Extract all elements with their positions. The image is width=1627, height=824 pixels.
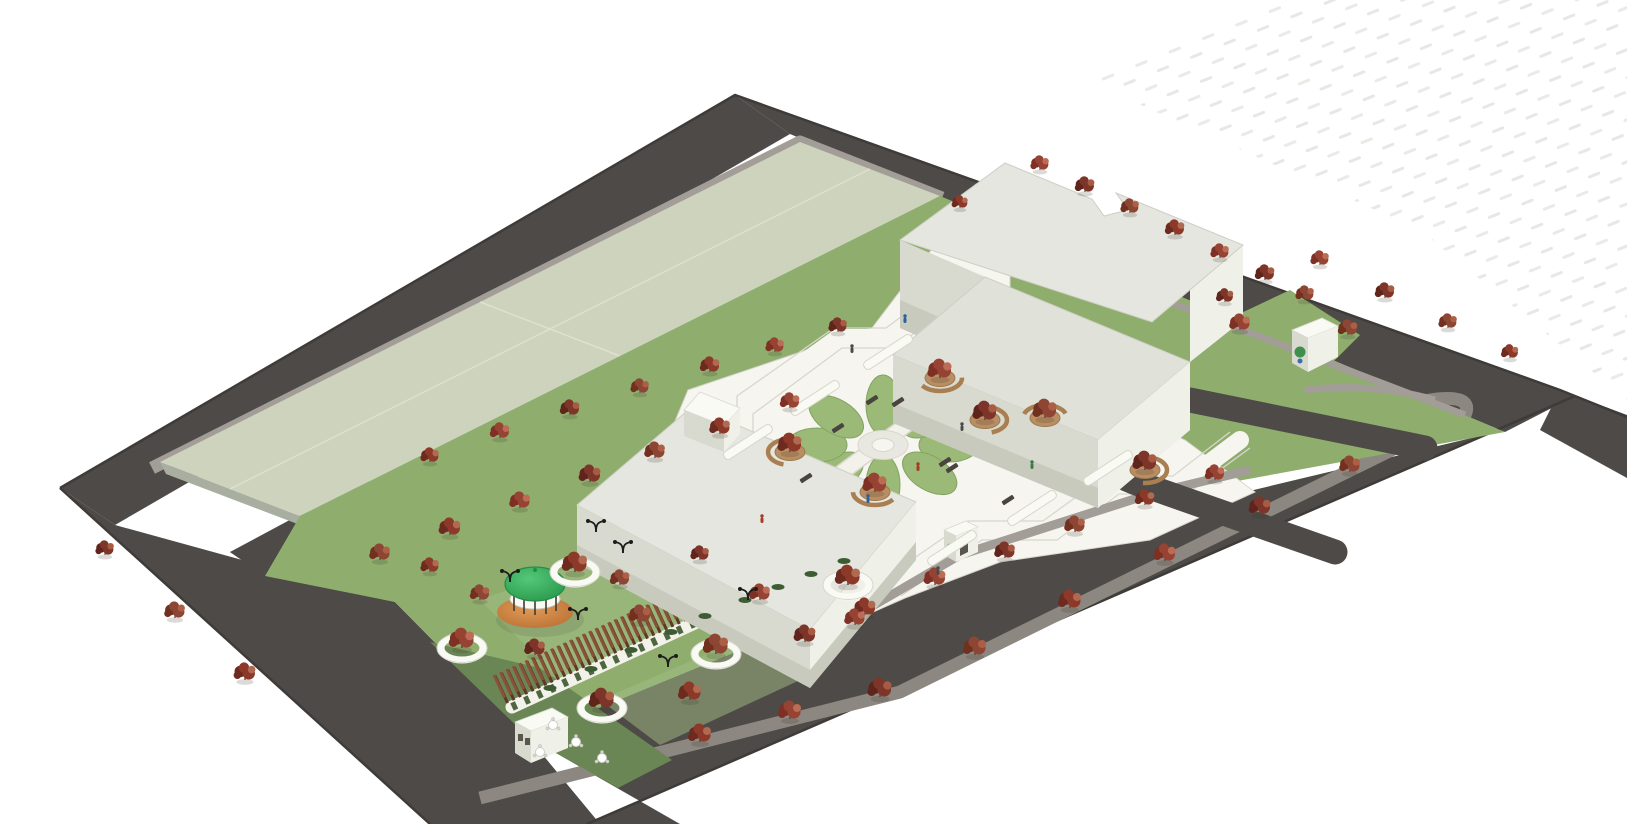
tree-canopy: [1307, 288, 1313, 294]
tree-shadow: [98, 555, 112, 560]
tree-canopy: [835, 575, 844, 584]
tree-canopy: [765, 345, 771, 351]
person-head: [760, 514, 763, 517]
lamp-head: [500, 569, 504, 573]
table-top: [598, 754, 607, 763]
tree-shadow: [372, 559, 388, 564]
tree-canopy: [688, 733, 696, 741]
tree-canopy: [793, 436, 801, 444]
tree-canopy: [644, 450, 651, 457]
tree-canopy: [999, 541, 1009, 551]
tree-canopy: [614, 569, 623, 578]
tree-canopy: [794, 633, 802, 641]
tree-shadow: [512, 507, 528, 512]
lamp-head: [613, 540, 617, 544]
tree-canopy: [955, 195, 963, 203]
tree-canopy: [873, 678, 885, 690]
tree-canopy: [164, 610, 171, 617]
tree-canopy: [927, 369, 935, 377]
tree-canopy: [239, 662, 249, 672]
table-chair: [557, 727, 560, 730]
hedge-shrub: [665, 629, 678, 635]
person-figure: [903, 314, 906, 323]
tree-canopy: [702, 548, 708, 554]
tree-canopy: [878, 476, 886, 484]
tree-canopy: [453, 521, 461, 529]
tree-canopy: [777, 340, 783, 346]
tree-canopy: [107, 543, 113, 549]
tree-canopy: [694, 724, 705, 735]
tree-canopy: [538, 642, 545, 649]
tree-canopy: [1315, 250, 1324, 259]
tree-shadow: [423, 572, 437, 577]
tree-canopy: [564, 399, 573, 408]
tree-canopy: [432, 560, 438, 566]
tree-canopy: [444, 517, 454, 527]
tree-canopy: [1259, 264, 1268, 273]
table-chair: [569, 744, 572, 747]
tree-canopy: [449, 638, 458, 647]
tree-canopy: [465, 632, 474, 641]
tree-canopy: [1379, 282, 1388, 291]
table-chair: [595, 760, 598, 763]
tree-canopy: [700, 364, 707, 371]
tree-canopy: [1139, 489, 1148, 498]
tree-canopy: [432, 450, 438, 456]
tree-canopy: [1079, 176, 1088, 185]
tree-canopy: [1216, 295, 1222, 301]
tree-canopy: [474, 584, 483, 593]
tree-shadow: [612, 584, 627, 589]
tree-canopy: [1268, 267, 1275, 274]
lamp-head: [568, 607, 572, 611]
person-head: [866, 494, 869, 497]
person-head: [850, 344, 853, 347]
lamp-head: [584, 607, 588, 611]
tree-canopy: [978, 640, 986, 648]
hedge-shrub: [838, 558, 851, 564]
tree-canopy: [883, 681, 891, 689]
tree-canopy: [1342, 319, 1351, 328]
table-top: [572, 738, 581, 747]
table-chair: [606, 760, 609, 763]
tree-canopy: [1295, 293, 1301, 299]
lamp-head: [586, 519, 590, 523]
tree-canopy: [560, 407, 567, 414]
tree-canopy: [658, 445, 665, 452]
tree-canopy: [1234, 313, 1244, 323]
person-figure: [866, 494, 869, 503]
tree-canopy: [439, 526, 447, 534]
tree-canopy: [844, 617, 851, 624]
tree-canopy: [1042, 158, 1048, 164]
hedge-shrub: [805, 571, 818, 577]
tree-shadow: [693, 560, 707, 565]
tree-shadow: [796, 641, 813, 647]
tree-canopy: [709, 426, 716, 433]
tree-canopy: [1168, 547, 1176, 555]
tree-canopy: [483, 587, 490, 594]
tree-canopy: [784, 701, 795, 712]
tree-canopy: [584, 464, 594, 474]
tree-canopy: [568, 552, 580, 564]
tree-canopy: [529, 638, 539, 648]
tree-canopy: [643, 608, 651, 616]
tree-shadow: [926, 584, 943, 590]
tree-shadow: [1313, 265, 1327, 270]
tree-canopy: [952, 202, 958, 208]
lamp-head: [738, 587, 742, 591]
tree-canopy: [713, 359, 720, 366]
tree-canopy: [962, 198, 968, 204]
person-head: [960, 422, 963, 425]
tree-canopy: [777, 443, 785, 451]
tree-canopy: [1443, 313, 1452, 322]
tree-canopy: [1148, 454, 1156, 462]
tree-canopy: [509, 500, 516, 507]
tree-canopy: [868, 473, 880, 485]
tree-canopy: [972, 411, 980, 419]
table-chair: [538, 744, 541, 747]
tree-canopy: [862, 483, 870, 491]
tree-shadow: [423, 462, 437, 467]
tree-shadow: [1232, 329, 1248, 334]
tree-canopy: [1209, 464, 1218, 473]
tree-canopy: [1249, 505, 1257, 513]
tree-shadow: [831, 332, 845, 337]
tree-shadow: [1340, 334, 1355, 339]
tree-canopy: [523, 495, 530, 502]
person-body: [917, 466, 920, 472]
tree-canopy: [749, 592, 756, 599]
lamp-head: [658, 654, 662, 658]
tree-canopy: [425, 557, 434, 566]
tree-canopy: [1227, 291, 1233, 297]
tree-canopy: [1075, 184, 1082, 191]
tree-canopy: [1132, 201, 1138, 207]
person-body: [867, 498, 870, 504]
tree-shadow: [1441, 328, 1455, 333]
tree-shadow: [752, 599, 768, 604]
person-head: [903, 314, 906, 317]
tree-canopy: [1215, 243, 1224, 252]
tree-canopy: [849, 608, 859, 618]
tree-canopy: [778, 710, 786, 718]
tree-canopy: [1300, 285, 1309, 294]
tree-canopy: [562, 562, 571, 571]
tree-canopy: [709, 634, 721, 646]
hedge-shrub: [585, 666, 598, 672]
person-figure: [916, 462, 919, 471]
tree-shadow: [1251, 513, 1268, 519]
tree-canopy: [1254, 496, 1264, 506]
tree-shadow: [1077, 191, 1092, 196]
hedge-shrub: [544, 685, 557, 691]
table-chair: [600, 750, 603, 753]
tree-canopy: [470, 592, 477, 599]
tree-canopy: [1035, 155, 1044, 164]
tree-canopy: [1220, 288, 1228, 296]
person-body: [851, 348, 854, 354]
tree-canopy: [1008, 545, 1015, 552]
tree-canopy: [783, 433, 795, 445]
person-head: [916, 462, 919, 465]
person-body: [961, 426, 964, 432]
table-chair: [546, 727, 549, 730]
lamp-head: [674, 654, 678, 658]
tree-shadow: [997, 557, 1013, 562]
tree-canopy: [1120, 206, 1126, 212]
hedge-shrub: [772, 584, 785, 590]
person-figure: [936, 566, 939, 575]
tree-canopy: [828, 325, 834, 331]
tree-canopy: [1125, 198, 1134, 207]
tree-shadow: [1298, 300, 1312, 305]
table-top: [536, 748, 545, 757]
tree-canopy: [374, 543, 384, 553]
tree-canopy: [1058, 599, 1066, 607]
tree-shadow: [472, 599, 487, 604]
tree-shadow: [527, 654, 543, 659]
tree-canopy: [1064, 524, 1071, 531]
tree-canopy: [924, 576, 932, 584]
tree-canopy: [933, 359, 945, 371]
tree-canopy: [593, 468, 601, 476]
tree-canopy: [1505, 344, 1513, 352]
tree-canopy: [1132, 461, 1140, 469]
tree-canopy: [770, 337, 779, 346]
tree-shadow: [782, 407, 797, 412]
tree-canopy: [514, 491, 524, 501]
tree-canopy: [589, 698, 598, 707]
tree-canopy: [95, 548, 101, 554]
tree-shadow: [1137, 504, 1152, 509]
tree-canopy: [858, 612, 865, 619]
tree-canopy: [455, 628, 467, 640]
tree-canopy: [1064, 590, 1075, 601]
person-figure: [960, 422, 963, 431]
tree-canopy: [1353, 459, 1360, 466]
tree-canopy: [623, 572, 630, 579]
tree-canopy: [1218, 467, 1225, 474]
tree-canopy: [1205, 472, 1212, 479]
tree-canopy: [1032, 409, 1040, 417]
table-top: [549, 721, 558, 730]
shed-window-2: [525, 738, 530, 745]
tree-canopy: [610, 577, 617, 584]
tree-shadow: [633, 393, 647, 398]
tree-shadow: [647, 457, 663, 462]
tree-shadow: [631, 621, 648, 627]
tree-canopy: [1138, 451, 1150, 463]
tree-shadow: [702, 371, 717, 376]
tree-canopy: [1229, 322, 1236, 329]
tree-shadow: [954, 208, 967, 212]
tree-canopy: [420, 455, 426, 461]
tree-canopy: [1255, 272, 1262, 279]
tree-canopy: [169, 601, 179, 611]
lamp-head: [602, 519, 606, 523]
lamp-head: [516, 569, 520, 573]
tree-canopy: [1073, 593, 1081, 601]
tree-canopy: [1078, 519, 1085, 526]
tree-canopy: [1322, 253, 1328, 259]
person-figure: [1030, 460, 1033, 469]
tree-canopy: [1339, 464, 1346, 471]
tree-canopy: [723, 421, 730, 428]
tree-canopy: [1038, 399, 1050, 411]
tree-canopy: [1154, 552, 1162, 560]
tree-canopy: [100, 540, 109, 549]
tree-canopy: [490, 430, 497, 437]
hedge-shrub: [625, 647, 638, 653]
tree-canopy: [1148, 492, 1155, 499]
person-body: [1031, 464, 1034, 470]
tree-canopy: [695, 545, 704, 554]
tree-canopy: [1501, 351, 1507, 357]
tree-canopy: [678, 691, 686, 699]
tree-shadow: [1257, 279, 1272, 284]
tree-canopy: [1048, 402, 1056, 410]
tree-canopy: [369, 552, 376, 559]
tree-shadow: [1156, 560, 1173, 566]
tree-canopy: [703, 644, 712, 653]
gazebo-finial: [533, 568, 537, 572]
flower-center-inner: [872, 439, 894, 452]
tree-canopy: [969, 637, 980, 648]
tree-shadow: [167, 617, 183, 622]
tree-canopy: [248, 666, 256, 674]
table-chair: [551, 717, 554, 720]
tree-shadow: [768, 352, 782, 357]
entrance-kiosk-pot: [1298, 359, 1303, 364]
site-plan-canvas: [0, 0, 1627, 824]
tree-canopy: [1210, 251, 1216, 257]
hedge-shrub: [699, 613, 712, 619]
tree-canopy: [988, 404, 996, 412]
tree-shadow: [712, 433, 728, 438]
tree-canopy: [1263, 500, 1271, 508]
tree-canopy: [634, 604, 644, 614]
tree-shadow: [492, 437, 507, 442]
tree-canopy: [868, 601, 876, 609]
hedge-shrub: [739, 597, 752, 603]
tree-canopy: [784, 392, 793, 401]
tree-canopy: [840, 320, 846, 326]
tree-canopy: [578, 556, 587, 565]
tree-canopy: [1388, 285, 1395, 292]
tree-canopy: [1375, 290, 1382, 297]
tree-canopy: [1165, 227, 1172, 234]
tree-canopy: [793, 395, 800, 402]
tree-canopy: [793, 704, 801, 712]
tree-canopy: [503, 425, 510, 432]
shed-window-1: [518, 734, 523, 741]
tree-canopy: [425, 447, 434, 456]
tree-shadow: [1207, 479, 1222, 484]
tree-canopy: [859, 597, 869, 607]
tree-shadow: [1067, 531, 1083, 536]
tree-shadow: [236, 679, 253, 685]
tree-shadow: [1503, 358, 1517, 363]
tree-shadow: [581, 481, 598, 487]
tree-canopy: [595, 688, 607, 700]
person-figure: [850, 344, 853, 353]
tree-canopy: [1243, 317, 1250, 324]
person-body: [904, 318, 907, 324]
lamp-head: [754, 587, 758, 591]
tree-canopy: [693, 685, 701, 693]
tree-canopy: [573, 402, 580, 409]
tree-canopy: [714, 417, 724, 427]
person-figure: [760, 514, 763, 523]
lamp-head: [629, 540, 633, 544]
tree-canopy: [763, 587, 770, 594]
tree-canopy: [383, 547, 390, 554]
tree-canopy: [978, 401, 990, 413]
tree-canopy: [1030, 163, 1036, 169]
tree-canopy: [1338, 327, 1345, 334]
table-chair: [580, 744, 583, 747]
tree-canopy: [178, 605, 185, 612]
tree-shadow: [1213, 258, 1227, 263]
tree-canopy: [841, 565, 853, 577]
tree-canopy: [780, 400, 787, 407]
tree-canopy: [524, 647, 531, 654]
tree-canopy: [1069, 515, 1079, 525]
tree-canopy: [1512, 347, 1518, 353]
tree-canopy: [629, 613, 637, 621]
site-plan-rendering: [0, 0, 1627, 824]
tree-shadow: [1377, 297, 1392, 302]
tree-canopy: [808, 628, 816, 636]
tree-canopy: [1178, 222, 1185, 229]
table-chair: [533, 754, 536, 757]
tree-canopy: [704, 356, 713, 365]
tree-canopy: [994, 550, 1001, 557]
tree-shadow: [562, 414, 577, 419]
tree-shadow: [1218, 302, 1232, 307]
tree-canopy: [719, 638, 728, 647]
tree-canopy: [799, 624, 809, 634]
tree-canopy: [1159, 543, 1169, 553]
tree-canopy: [1169, 219, 1178, 228]
tree-canopy: [1344, 455, 1354, 465]
tree-canopy: [943, 362, 951, 370]
tree-canopy: [1438, 321, 1444, 327]
tree-canopy: [1450, 316, 1456, 322]
tree-canopy: [649, 441, 659, 451]
tree-shadow: [847, 624, 863, 629]
tree-canopy: [494, 422, 503, 431]
tree-canopy: [684, 682, 695, 693]
tree-shadow: [1123, 213, 1137, 218]
tree-canopy: [642, 381, 648, 387]
tree-canopy: [630, 386, 636, 392]
tree-shadow: [1342, 471, 1358, 476]
person-head: [936, 566, 939, 569]
tree-canopy: [690, 553, 696, 559]
tree-canopy: [833, 317, 842, 326]
tree-canopy: [703, 727, 711, 735]
tree-canopy: [579, 473, 587, 481]
tree-canopy: [1088, 179, 1095, 186]
tree-canopy: [420, 565, 426, 571]
tree-canopy: [963, 646, 971, 654]
table-chair: [574, 734, 577, 737]
tree-canopy: [605, 692, 614, 701]
person-body: [937, 570, 940, 576]
